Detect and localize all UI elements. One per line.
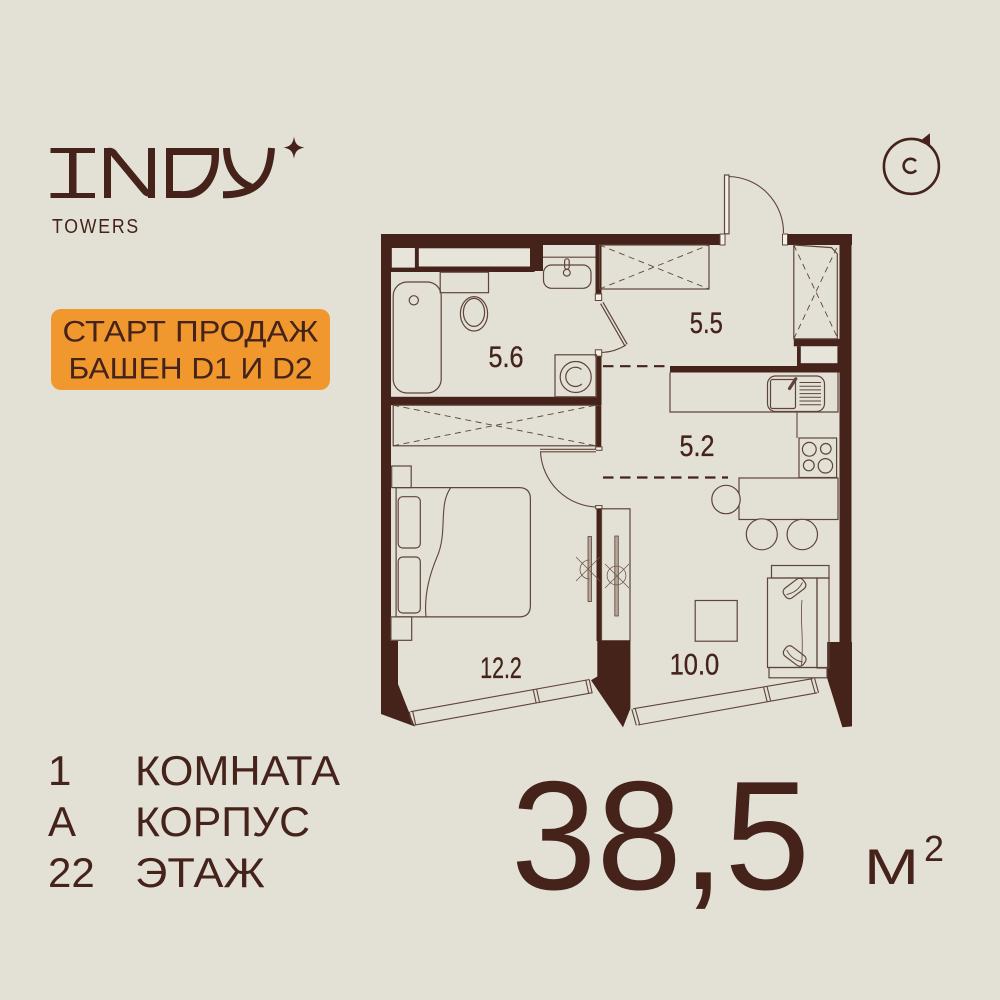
svg-text:2: 2 <box>924 828 944 869</box>
svg-text:ЭТАЖ: ЭТАЖ <box>135 849 265 896</box>
svg-text:М: М <box>864 839 919 895</box>
svg-text:5.5: 5.5 <box>690 307 723 340</box>
svg-text:TOWERS: TOWERS <box>52 216 140 238</box>
svg-text:СТАРТ ПРОДАЖ: СТАРТ ПРОДАЖ <box>63 316 319 349</box>
svg-text:10.0: 10.0 <box>670 648 720 681</box>
svg-text:38,5: 38,5 <box>511 749 810 922</box>
svg-text:5.2: 5.2 <box>680 430 715 463</box>
svg-text:22: 22 <box>48 849 95 896</box>
svg-text:КОРПУС: КОРПУС <box>135 798 310 845</box>
svg-text:БАШЕН D1 И D2: БАШЕН D1 И D2 <box>69 353 313 386</box>
svg-text:А: А <box>48 798 76 845</box>
svg-text:5.6: 5.6 <box>489 341 524 374</box>
svg-text:1: 1 <box>48 747 71 794</box>
svg-text:12.2: 12.2 <box>480 652 522 685</box>
svg-text:КОМНАТА: КОМНАТА <box>135 747 340 794</box>
